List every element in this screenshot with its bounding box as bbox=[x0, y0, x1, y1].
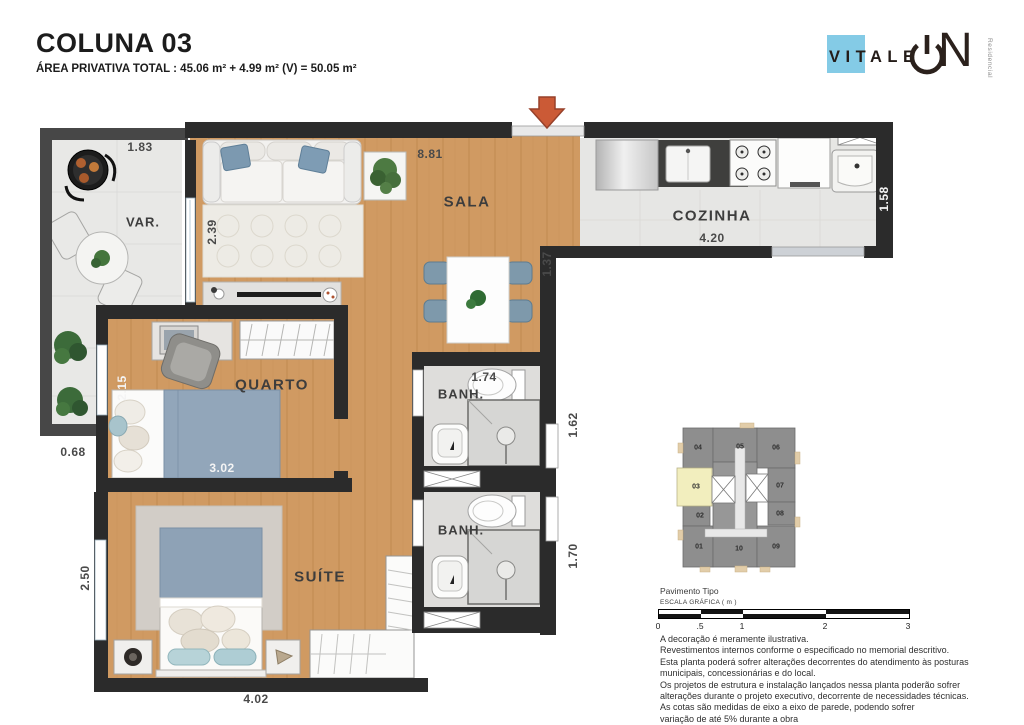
unit-label-04: 04 bbox=[694, 445, 702, 452]
disclaimer-line: alterações durante o projeto executivo, … bbox=[660, 691, 990, 702]
dim-banh2-right: 1.70 bbox=[566, 543, 580, 568]
sofa bbox=[203, 140, 361, 204]
disclaimer-line: municipais, concessionárias e do local. bbox=[660, 668, 990, 679]
quarto-shelf bbox=[240, 321, 334, 359]
suite-door-opening bbox=[352, 478, 412, 492]
room-label-banh2: BANH. bbox=[438, 523, 484, 538]
nightstand-right bbox=[266, 640, 300, 674]
scale-label: ESCALA GRÁFICA ( m ) bbox=[660, 599, 737, 606]
disclaimer-line: A decoração é meramente ilustrativa. bbox=[660, 634, 990, 645]
disclaimer-line: Revestimentos internos conforme o especi… bbox=[660, 645, 990, 656]
scale-bar bbox=[658, 609, 910, 619]
unit-label-08: 08 bbox=[776, 511, 784, 518]
unit-label-09: 09 bbox=[772, 544, 780, 551]
dim-varanda-top: 1.83 bbox=[127, 140, 152, 154]
unit-label-06: 06 bbox=[772, 445, 780, 452]
room-label-banh1: BANH. bbox=[438, 387, 484, 402]
dim-varanda-bottom: 0.68 bbox=[60, 445, 85, 459]
washer-counter bbox=[778, 138, 830, 188]
disclaimer-line: Esta planta poderá sofrer alterações dec… bbox=[660, 657, 990, 668]
dim-sala-left: 2.39 bbox=[205, 219, 219, 244]
dim-suite-bottom: 4.02 bbox=[243, 692, 268, 706]
laundry-tank bbox=[832, 150, 878, 192]
room-label-cozinha: COZINHA bbox=[673, 208, 752, 225]
unit-label-01: 01 bbox=[695, 544, 703, 551]
room-label-quarto: QUARTO bbox=[235, 377, 309, 394]
suite-bed bbox=[156, 528, 266, 677]
disclaimer-line: Os projetos de estrutura e instalação la… bbox=[660, 680, 990, 691]
dim-suite-left: 2.50 bbox=[78, 565, 92, 590]
unit-label-03: 03 bbox=[692, 484, 700, 491]
dim-cozinha-right: 1.58 bbox=[877, 186, 891, 211]
unit-label-07: 07 bbox=[776, 483, 784, 490]
tv-sideboard bbox=[203, 282, 341, 308]
scale-tick-05: .5 bbox=[696, 621, 703, 631]
unit-label-10: 10 bbox=[735, 546, 743, 553]
dim-banh1-right: 1.62 bbox=[566, 412, 580, 437]
disclaimer-text: A decoração é meramente ilustrativa. Rev… bbox=[660, 634, 990, 725]
scale-tick-2: 2 bbox=[823, 621, 828, 631]
stove bbox=[730, 140, 776, 186]
unit-label-02: 02 bbox=[696, 513, 704, 520]
floorplan-page: { "header": { "title": "COLUNA 03", "sub… bbox=[0, 0, 1024, 723]
nightstand-left bbox=[114, 640, 152, 674]
room-label-suite: SUÍTE bbox=[294, 569, 346, 586]
dim-sala-right: 1.37 bbox=[540, 251, 554, 276]
room-label-sala: SALA bbox=[444, 194, 491, 211]
quarto-door-opening bbox=[334, 419, 348, 471]
rug bbox=[203, 205, 363, 277]
dim-sala-top: 8.81 bbox=[417, 147, 442, 161]
scale-tick-1: 1 bbox=[740, 621, 745, 631]
side-table-plant bbox=[364, 152, 406, 200]
dim-cozinha-width: 4.20 bbox=[699, 231, 724, 245]
unit-label-05: 05 bbox=[736, 444, 744, 451]
fridge bbox=[596, 140, 658, 190]
scale-tick-0: 0 bbox=[656, 621, 661, 631]
dim-quarto-left: 2.15 bbox=[115, 375, 129, 400]
keyplan-drawing bbox=[660, 415, 840, 575]
dim-banh1-top: 1.74 bbox=[471, 370, 496, 384]
room-label-varanda: VAR. bbox=[126, 215, 160, 230]
scale-tick-3: 3 bbox=[906, 621, 911, 631]
quarto-bed bbox=[109, 390, 280, 478]
dim-quarto-width: 3.02 bbox=[209, 461, 234, 475]
disclaimer-line: variação de até 5% durante a obra bbox=[660, 714, 990, 725]
disclaimer-line: As cotas são medidas de eixo a eixo de p… bbox=[660, 702, 990, 713]
entrance-arrow-icon bbox=[530, 97, 564, 128]
keyplan-caption: Pavimento Tipo bbox=[660, 586, 719, 596]
